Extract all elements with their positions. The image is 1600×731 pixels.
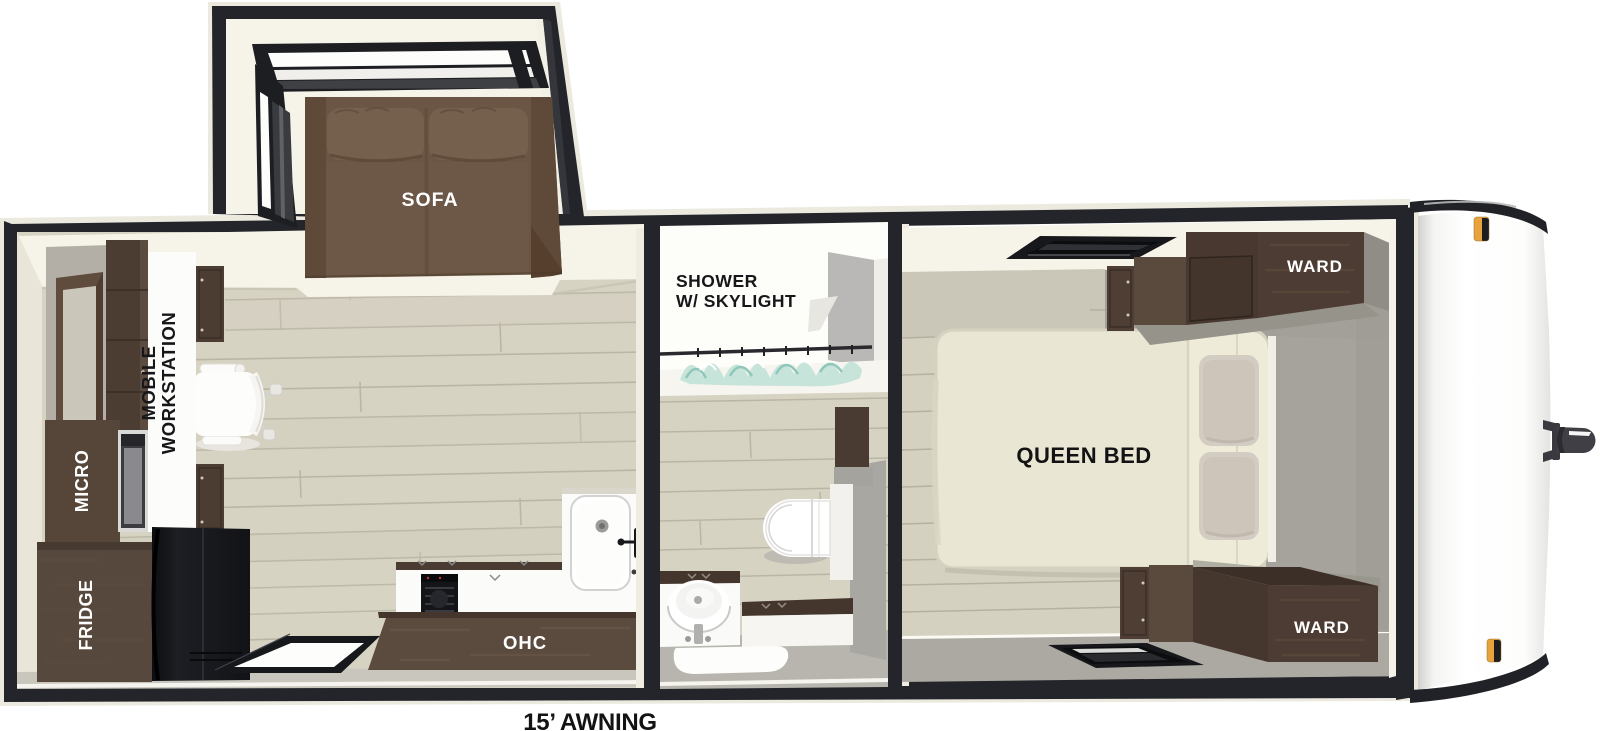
svg-text:MICRO: MICRO: [72, 450, 92, 513]
svg-text:15’ AWNING: 15’ AWNING: [523, 709, 656, 731]
svg-text:FRIDGE: FRIDGE: [76, 579, 96, 650]
svg-text:SOFA: SOFA: [401, 189, 458, 211]
svg-text:W/ SKYLIGHT: W/ SKYLIGHT: [676, 291, 796, 311]
svg-text:OHC: OHC: [503, 632, 547, 653]
svg-text:WARD: WARD: [1294, 618, 1350, 637]
svg-text:WARD: WARD: [1287, 257, 1343, 276]
svg-text:MOBILE: MOBILE: [138, 346, 159, 421]
svg-text:SHOWER: SHOWER: [676, 271, 758, 291]
svg-text:WORKSTATION: WORKSTATION: [158, 312, 179, 455]
svg-text:QUEEN BED: QUEEN BED: [1016, 443, 1151, 468]
